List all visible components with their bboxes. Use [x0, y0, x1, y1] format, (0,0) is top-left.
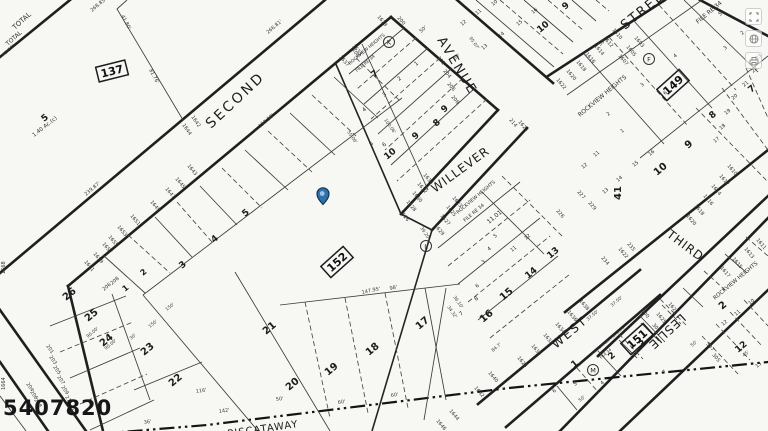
dimension-label: 50': [577, 394, 586, 403]
lot-number: 16: [530, 7, 539, 16]
lot-number: 2: [396, 76, 403, 83]
lot-number: 10: [747, 298, 756, 307]
municipal-boundary-line: [0, 362, 768, 431]
dimension-label: 60': [390, 392, 399, 399]
lot-number: 5: [492, 233, 498, 240]
lot-number: 12: [720, 319, 729, 328]
lot-number-bold: 14: [524, 266, 540, 282]
lot-number-bold: 23: [139, 341, 157, 358]
lot-number-bold: 25: [83, 307, 101, 324]
block-number-box: 149: [657, 69, 689, 100]
address-number: 200: [395, 15, 406, 26]
address-number: 234: [599, 255, 610, 266]
dimension-label: 37.50': [609, 295, 624, 309]
lot-number: 15: [515, 19, 524, 28]
lot-number-bold: 9: [561, 1, 572, 13]
lot-number: 19: [723, 108, 732, 117]
dimension-label: 60': [337, 399, 346, 406]
dimension-label: 95.07': [467, 36, 480, 51]
address-number: 208: [109, 276, 120, 287]
lot-number-bold: 10: [652, 161, 670, 178]
lot-number: 2: [605, 111, 611, 118]
print-button[interactable]: [745, 52, 762, 69]
dimension-label: 41.80': [119, 14, 132, 31]
dimension-label: 142': [218, 408, 230, 415]
lot-number-bold: 1: [121, 283, 131, 294]
address-number: 1618: [574, 59, 587, 73]
address-number: 1646: [434, 418, 447, 431]
dimension-label: 36.10': [451, 295, 464, 310]
lot-number: 16: [647, 149, 656, 158]
address-number: 229: [586, 200, 597, 211]
dimension-label: 50': [275, 396, 284, 403]
address-number: 1642: [189, 115, 201, 129]
address-number: 1611: [754, 237, 767, 251]
lot-number-bold: 5: [241, 208, 252, 220]
lot-number-bold: 26: [61, 286, 79, 303]
lot-number: 4: [486, 246, 492, 253]
lot-number: 5: [368, 140, 375, 147]
lot-number: 11: [509, 245, 518, 254]
globe-button[interactable]: [745, 30, 762, 47]
lot-number: 3: [480, 259, 486, 266]
address-number: 226: [554, 208, 565, 219]
lot-number: 1: [619, 128, 625, 135]
address-number: 1607: [616, 53, 629, 67]
monument-letter: K: [387, 38, 392, 46]
lot-number-bold: 15: [498, 286, 516, 303]
dimension-label: 150': [164, 302, 175, 313]
address-number: 1664: [1, 377, 7, 390]
street-label: SECOND: [203, 69, 269, 132]
dimension-label: 34.32': [445, 305, 458, 320]
lot-number: 3: [722, 45, 728, 52]
lot-number: 17: [712, 136, 721, 145]
tax-map-svg: SECONDAVENUESTREETWILLEVERTHIRDWESTLESLI…: [0, 0, 768, 431]
globe-icon: [749, 34, 759, 44]
address-number: 1613: [742, 246, 755, 260]
lot-number: 6: [474, 283, 480, 290]
address-number: 1629: [432, 223, 445, 237]
address-number: 206: [445, 81, 456, 92]
street-label: LESLIE: [646, 311, 689, 352]
lot-number: 8: [473, 295, 480, 302]
monument-letter: M: [590, 366, 596, 374]
lot-number: 13: [480, 43, 489, 52]
address-number: 1640: [486, 370, 499, 384]
lot-number-bold: 41: [613, 186, 624, 200]
address-number: 1659: [91, 251, 104, 265]
dimension-label: 55.06': [345, 130, 358, 145]
lot-number-bold: 2: [139, 267, 149, 277]
lot-number: 13: [754, 361, 763, 370]
monument-letter: L: [424, 242, 428, 250]
lot-number: 20: [730, 93, 739, 102]
lot-number: 10: [490, 0, 499, 8]
lot-number: 12: [459, 19, 468, 28]
lot-number: 6: [551, 388, 557, 395]
dimension-label: 100.06': [382, 118, 397, 135]
lot-number-bold: 13: [546, 246, 562, 262]
lot-number: 7: [458, 310, 465, 317]
street-label: STREET: [618, 0, 675, 33]
lot-number: 3: [381, 91, 388, 98]
address-number: 1668: [1, 261, 7, 274]
lot-number-bold: 8: [708, 110, 719, 122]
photo-id-label: 5407820: [3, 398, 112, 419]
address-number: 1620: [564, 68, 577, 82]
lot-number: 14: [615, 175, 624, 184]
lot-number-bold: 1: [570, 359, 581, 371]
dimension-label: 90.00': [85, 326, 100, 340]
address-number: 1642: [472, 385, 485, 399]
street-label: THIRD: [663, 227, 706, 264]
lot-number-bold: 9: [440, 104, 451, 116]
dimension-label: 36': [143, 419, 152, 426]
lot-number: 13: [601, 187, 610, 196]
monument-letter: F: [647, 55, 651, 63]
block-number-box: 151: [621, 323, 653, 354]
address-number: 235: [625, 241, 636, 252]
lot-number: 14: [497, 31, 506, 40]
lot-number: 7: [661, 369, 667, 376]
location-pin: [317, 188, 329, 205]
lot-number-bold: 16: [478, 308, 496, 325]
lot-number-bold: 21: [261, 320, 279, 337]
lot-number-bold: 17: [414, 315, 432, 332]
dimension-label: 150': [147, 319, 158, 330]
address-number: 1622: [616, 246, 629, 260]
street-label: WEST: [549, 313, 590, 351]
lot-number: 1: [413, 61, 420, 68]
dimension-label: 98': [389, 284, 398, 291]
address-number: 1622: [554, 77, 567, 91]
lot-number: 12: [580, 162, 589, 171]
lot-number: 4: [672, 53, 678, 60]
lot-number-bold: 19: [323, 361, 341, 378]
address-number: 1644: [447, 408, 460, 422]
address-number: 208: [449, 94, 460, 105]
lot-number-bold: 18: [364, 341, 382, 358]
address-number: 1628: [404, 199, 417, 213]
dimension-label: 266.81': [265, 19, 283, 36]
map-note: TOTAL: [10, 11, 33, 33]
address-number: 1626: [397, 209, 410, 223]
map-note: ROCKVIEW HEIGHTS: [577, 74, 629, 119]
dimension-label: 268.85': [89, 0, 107, 14]
block-number-box: 152: [321, 246, 353, 277]
tax-map-image[interactable]: SECONDAVENUESTREETWILLEVERTHIRDWESTLESLI…: [0, 0, 768, 431]
address-number: 1644: [180, 123, 192, 137]
lot-number: 11: [592, 150, 601, 159]
fullscreen-button[interactable]: [745, 8, 762, 25]
map-controls: [745, 8, 762, 69]
address-number: 1616: [583, 51, 596, 65]
lot-number: 6: [381, 141, 388, 148]
lot-number-bold: 9: [683, 138, 695, 151]
dimension-label: 153.58': [257, 113, 275, 130]
dimension-label: 116': [195, 388, 207, 395]
print-icon: [749, 56, 759, 66]
lot-number-bold: 2: [607, 351, 618, 363]
block-number-box: 137: [96, 60, 129, 82]
lot-number: 18: [718, 123, 727, 132]
address-number: 1620: [684, 213, 697, 227]
address-number: 1643: [185, 163, 198, 177]
lot-number-bold: 22: [167, 372, 185, 389]
lot-number: 3: [639, 82, 645, 89]
dimension-label: 84.7': [490, 342, 502, 354]
address-number: 201: [44, 344, 54, 355]
lot-number: 4: [361, 106, 368, 113]
address-number: 1617: [718, 265, 731, 279]
dimension-label: 50': [418, 25, 428, 35]
dimension-label: 81.76': [147, 68, 160, 85]
lot-number-bold: 9: [411, 131, 422, 143]
address-number: 227: [575, 189, 586, 200]
lot-number: 15: [631, 160, 640, 169]
lot-number-bold: 2: [717, 299, 729, 312]
fullscreen-icon: [749, 12, 759, 22]
address-number: 1603: [632, 35, 645, 49]
dimension-label: 50': [689, 339, 698, 348]
dimension-label: 30': [128, 332, 137, 341]
dimension-label: 37.50': [585, 309, 600, 323]
address-number: 1638: [577, 298, 590, 312]
